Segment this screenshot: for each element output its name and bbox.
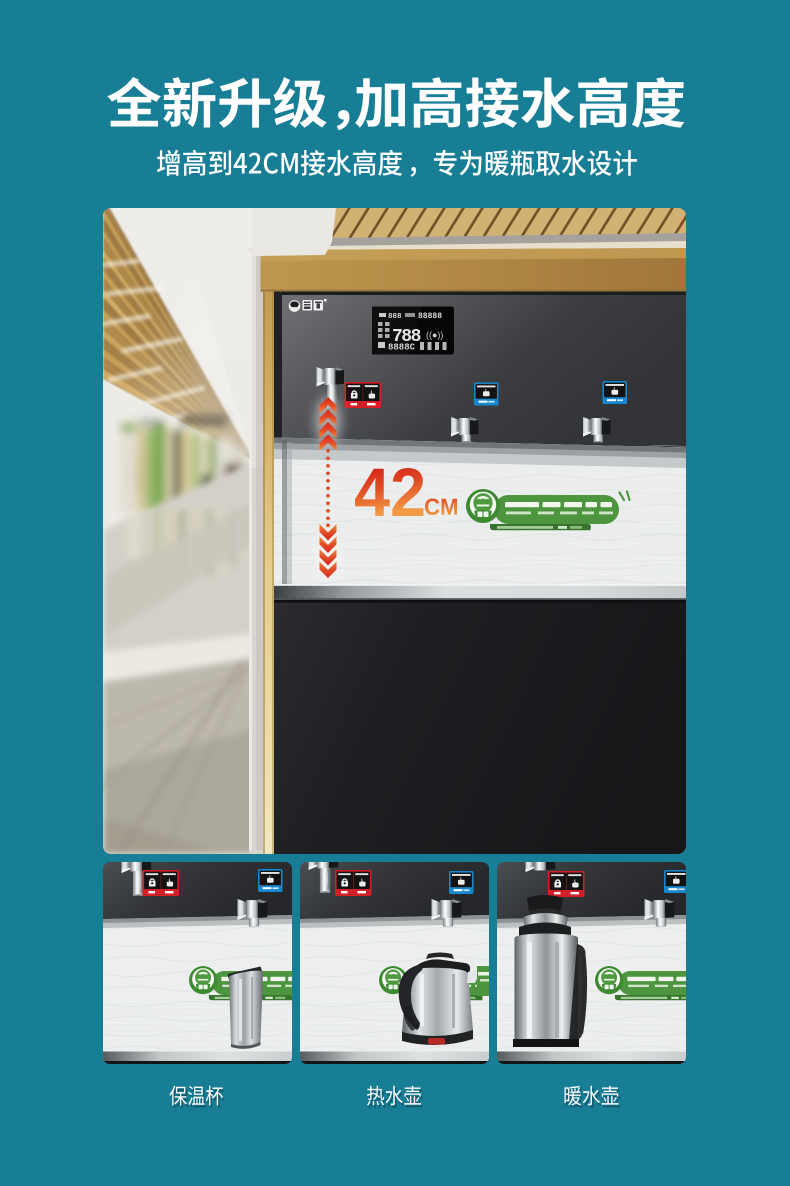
svg-text:888: 888 [388, 313, 402, 321]
svg-text:88888: 88888 [418, 312, 442, 321]
svg-text:((●)): ((●)) [426, 330, 443, 340]
svg-text:8888C: 8888C [388, 342, 416, 352]
